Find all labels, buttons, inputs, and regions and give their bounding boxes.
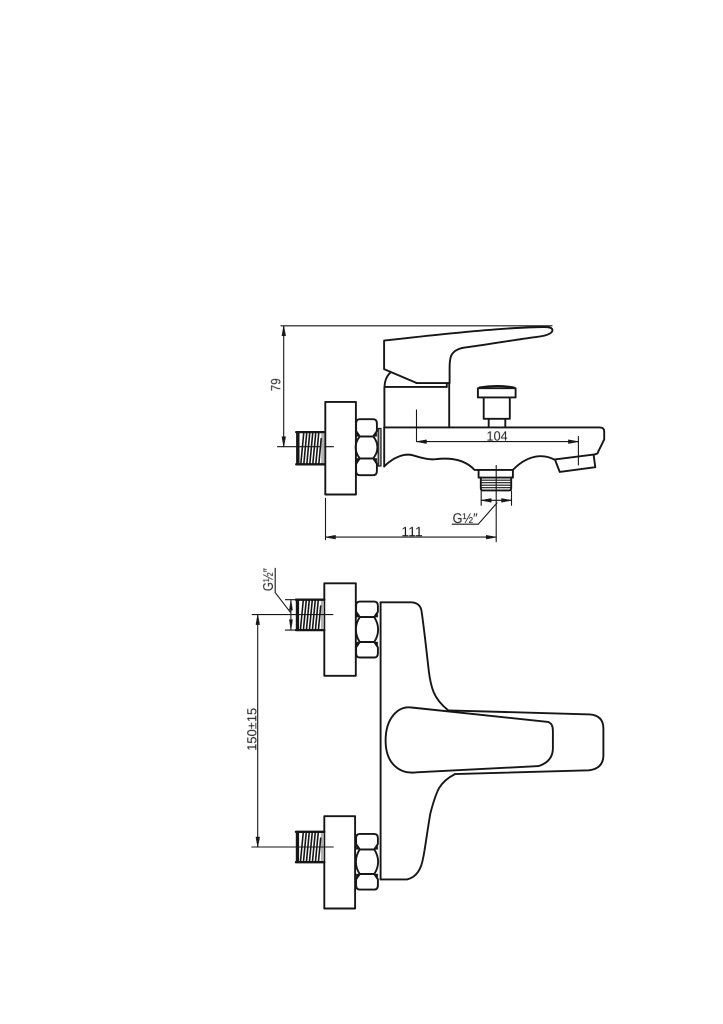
- svg-text:111: 111: [401, 524, 423, 539]
- svg-text:G½″: G½″: [260, 568, 276, 591]
- svg-text:150±15: 150±15: [244, 708, 259, 751]
- svg-text:104: 104: [486, 429, 508, 444]
- svg-text:79: 79: [268, 378, 283, 391]
- svg-text:G½″: G½″: [453, 510, 478, 526]
